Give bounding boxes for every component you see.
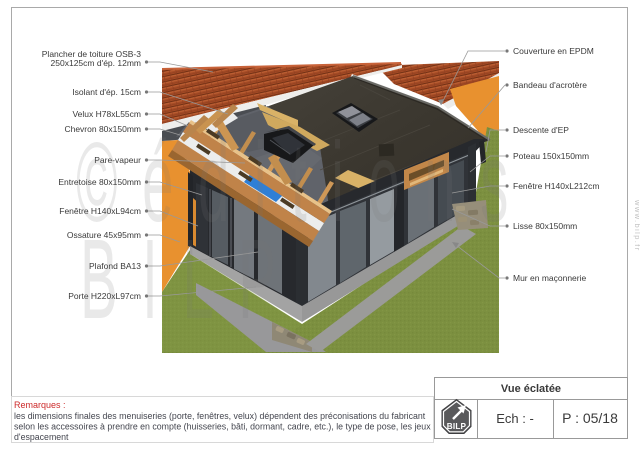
svg-text:Couverture en EPDM: Couverture en EPDM: [513, 46, 594, 56]
svg-text:BILP: BILP: [447, 422, 467, 431]
svg-text:Mur en maçonnerie: Mur en maçonnerie: [513, 273, 587, 283]
svg-text:www.bilp.fr: www.bilp.fr: [633, 199, 640, 252]
svg-text:Isolant d'ép. 15cm: Isolant d'ép. 15cm: [72, 87, 141, 97]
svg-text:BILP: BILP: [80, 216, 300, 342]
svg-text:les dimensions finales des men: les dimensions finales des menuiseries (…: [14, 411, 426, 421]
svg-text:250x125cm d'ép. 12mm: 250x125cm d'ép. 12mm: [51, 58, 141, 68]
svg-text:Vue éclatée: Vue éclatée: [501, 383, 561, 395]
svg-text:d'espacement: d'espacement: [14, 432, 69, 442]
svg-text:selon les accessoires à prendr: selon les accessoires à prendre en compt…: [14, 422, 431, 432]
svg-text:Remarques :: Remarques :: [14, 400, 66, 410]
svg-text:Bandeau d'acrotère: Bandeau d'acrotère: [513, 80, 587, 90]
svg-text:P : 05/18: P : 05/18: [562, 410, 618, 426]
svg-text:Velux H78xL55cm: Velux H78xL55cm: [72, 109, 141, 119]
svg-text:Ech : -: Ech : -: [496, 411, 534, 426]
